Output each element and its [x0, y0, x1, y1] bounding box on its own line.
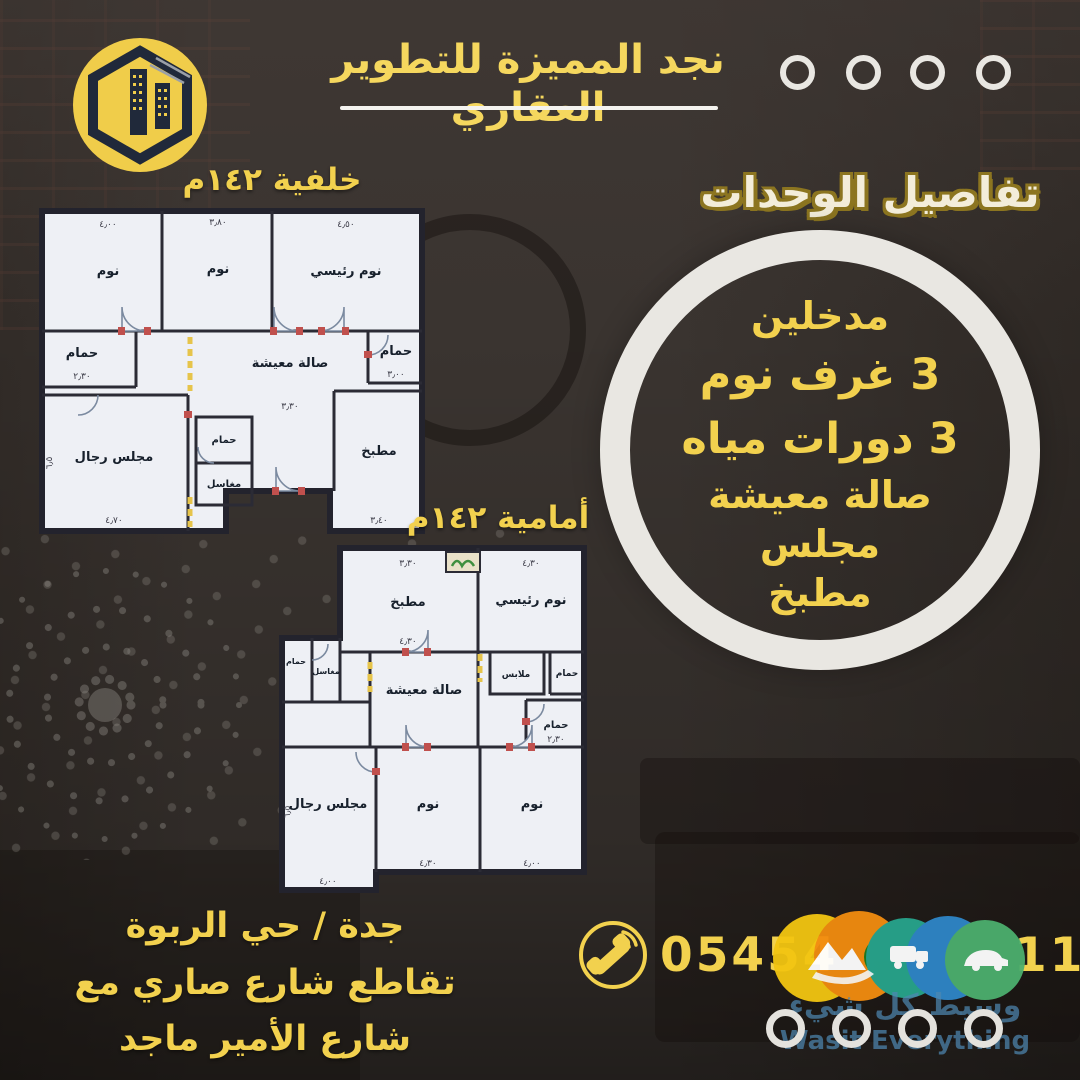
- room-label: حمام: [556, 669, 579, 679]
- title-underline: [340, 106, 718, 110]
- room-label: نوم: [417, 797, 440, 812]
- room-label: مجلس رجال: [289, 797, 368, 812]
- address-line-street2: شارع الأمير ماجد: [55, 1011, 475, 1068]
- dim-label: ٤٫٣٠: [522, 559, 539, 569]
- dim-label: ٣٫٣٠: [399, 559, 416, 569]
- floor-plan-front: مطبخ نوم رئيسي صالة معيشة ملابس حمام حما…: [278, 542, 590, 898]
- decor-circle: [780, 55, 815, 90]
- feature-bedrooms: 3 غرف نوم: [630, 344, 1010, 408]
- room-label: نوم: [207, 262, 230, 277]
- room-label: حمام: [286, 657, 306, 666]
- decor-circle: [976, 55, 1011, 90]
- company-title: نجد المميزة للتطوير العقاري: [278, 36, 778, 132]
- room-label: مجلس رجال: [75, 450, 154, 465]
- address-line-city: جدة / حي الربوة: [55, 898, 475, 955]
- dim-label: ٣٫٤٠: [370, 516, 387, 526]
- plan-back-label: خلفية ١٤٢م: [172, 162, 372, 198]
- room-label: نوم: [521, 797, 544, 812]
- feature-living-hall: صالة معيشة: [630, 471, 1010, 520]
- room-label: صالة معيشة: [252, 356, 329, 371]
- dim-label: ٤٫٥٠: [337, 220, 354, 230]
- dim-label: ٢٫٣٠: [547, 735, 564, 745]
- room-label: ملابس: [502, 670, 531, 680]
- headboard-silhouette: [640, 758, 1080, 844]
- address-line-street1: تقاطع شارع صاري مع: [55, 955, 475, 1012]
- room-label: صالة معيشة: [386, 683, 463, 698]
- room-label: مطبخ: [361, 444, 396, 459]
- dim-label: ٢٫٣٠: [73, 372, 90, 382]
- room-label: نوم رئيسي: [495, 593, 566, 608]
- decor-circle: [910, 55, 945, 90]
- dim-label: ٤٫٣٠: [419, 859, 436, 869]
- decor-circle: [766, 1009, 805, 1048]
- decor-circle: [964, 1009, 1003, 1048]
- plan-front-label: أمامية ١٤٢م: [393, 500, 603, 536]
- floor-plan-back: نوم نوم نوم رئيسي حمام صالة معيشة حمام م…: [38, 205, 426, 541]
- dim-label: ٦٫٥: [45, 457, 55, 470]
- room-label: مغاسل: [207, 479, 241, 490]
- feature-entrances: مدخلين: [630, 288, 1010, 344]
- dim-label: ٤٫٣٠: [399, 637, 416, 647]
- dim-label: ٦٫٥: [283, 806, 293, 819]
- phone-icon: [579, 921, 647, 989]
- dim-label: ٣٫٠٠: [387, 370, 404, 380]
- section-title-unit-details: تفاصيل الوحدات: [680, 168, 1060, 217]
- decor-circle: [846, 55, 881, 90]
- feature-majlis: مجلس: [630, 520, 1010, 569]
- dim-label: ٤٫٠٠: [319, 877, 336, 887]
- room-label: نوم: [97, 264, 120, 279]
- real-estate-flyer: نجد المميزة للتطوير العقاري تفاصيل الوحد…: [0, 0, 1080, 1080]
- room-label: مغاسل: [312, 667, 340, 676]
- dim-label: ٣٫٣٠: [281, 402, 298, 412]
- dim-label: ٤٫٠٠: [99, 220, 116, 230]
- planter-box: [446, 552, 480, 572]
- dim-label: ٤٫٧٠: [105, 516, 122, 526]
- room-label: حمام: [380, 344, 413, 359]
- features-list: مدخلين 3 غرف نوم 3 دورات مياه صالة معيشة…: [630, 288, 1010, 617]
- room-label: نوم رئيسي: [310, 264, 381, 279]
- decor-circle: [832, 1009, 871, 1048]
- company-logo: [66, 31, 214, 179]
- feature-bathrooms: 3 دورات مياه: [630, 408, 1010, 472]
- dim-label: ٤٫٠٠: [523, 859, 540, 869]
- dim-label: ٣٫٨٠: [209, 218, 226, 228]
- decor-circle: [898, 1009, 937, 1048]
- room-label: حمام: [66, 346, 99, 361]
- address-block: جدة / حي الربوة تقاطع شارع صاري مع شارع …: [55, 898, 475, 1068]
- room-label: حمام: [212, 435, 237, 446]
- room-label: مطبخ: [390, 595, 425, 610]
- feature-kitchen: مطبخ: [630, 569, 1010, 618]
- room-label: حمام: [544, 720, 569, 731]
